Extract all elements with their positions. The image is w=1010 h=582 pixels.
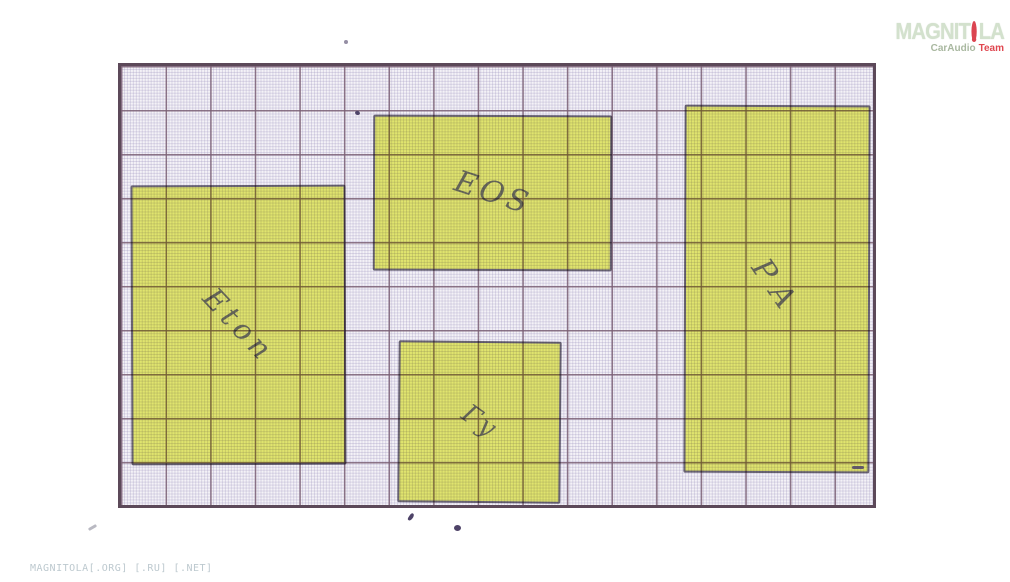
ink-mark xyxy=(344,40,348,44)
ink-mark xyxy=(454,525,461,531)
block-label-eton: Eton xyxy=(196,281,282,369)
speaker-dot-icon xyxy=(972,37,976,42)
block-label-pa: PA xyxy=(744,252,810,325)
graph-paper-sheet: Eton EOS Гу PA xyxy=(118,63,876,508)
magnitola-wordmark: MAGNIT LA xyxy=(898,18,1004,45)
block-label-head-unit: Гу xyxy=(455,399,504,446)
layout-block-eos: EOS xyxy=(373,115,613,272)
layout-block-head-unit: Гу xyxy=(397,340,561,503)
logo-text-magnit: MAGNIT xyxy=(895,18,970,45)
logo-text-la: LA xyxy=(979,18,1004,45)
scan-smudge xyxy=(88,524,97,531)
layout-block-pa: PA xyxy=(683,105,870,474)
ink-mark xyxy=(852,466,864,469)
block-label-eos: EOS xyxy=(449,164,535,222)
magnitola-logo: MAGNIT LA CarAudioTeam xyxy=(884,18,1004,54)
footer-watermark-text: MAGNITOLA[.ORG] [.RU] [.NET] xyxy=(30,563,213,574)
layout-block-eton: Eton xyxy=(131,185,347,466)
ink-mark xyxy=(407,513,415,522)
speaker-o-icon xyxy=(972,21,977,42)
